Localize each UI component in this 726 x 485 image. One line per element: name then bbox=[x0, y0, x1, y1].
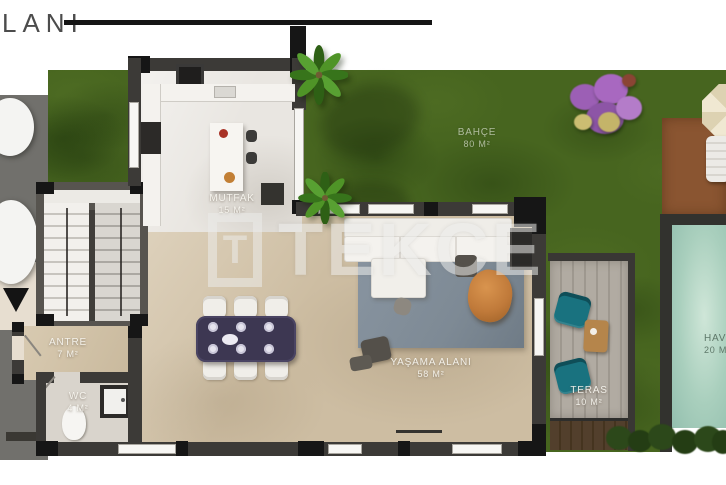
terrace-top-beam bbox=[548, 253, 634, 261]
bottom-window bbox=[328, 444, 362, 454]
wall-post bbox=[532, 424, 546, 446]
entrance-arrow-icon bbox=[3, 288, 29, 312]
hallway-name: ANTRE bbox=[28, 336, 108, 349]
living-area-label: YAŞAMA ALANI 58 M² bbox=[372, 356, 490, 381]
bar-stool bbox=[246, 152, 257, 164]
watermark-logo-letter: T bbox=[223, 228, 247, 273]
bar-stool bbox=[246, 130, 257, 142]
terrace-coffee-table bbox=[583, 319, 609, 352]
stair-landing bbox=[44, 190, 140, 203]
right-window bbox=[534, 298, 544, 356]
dining-chair bbox=[203, 296, 226, 318]
watermark-text: TEKCE bbox=[278, 213, 544, 287]
pool-name: HAVUZ bbox=[704, 332, 726, 345]
wc-label: WC 4 M² bbox=[52, 390, 104, 415]
garden-label: BAHÇE 80 M² bbox=[432, 126, 522, 151]
stair-handrail bbox=[120, 208, 122, 316]
pool-frame bbox=[660, 214, 672, 452]
wall-post bbox=[128, 326, 142, 338]
sun-lounger bbox=[706, 136, 726, 182]
kitchen-top-wall bbox=[128, 58, 304, 71]
flower-cluster bbox=[622, 74, 636, 87]
place-setting bbox=[264, 344, 274, 354]
dining-chair bbox=[234, 296, 257, 318]
dining-chair bbox=[265, 296, 288, 318]
palm-fronds bbox=[290, 45, 348, 105]
wc-left-wall bbox=[36, 372, 46, 450]
tall-cabinet bbox=[141, 122, 161, 154]
watermark-logo: T bbox=[208, 213, 262, 287]
serving-dish bbox=[222, 334, 238, 345]
pool-label: HAVUZ 20 M² bbox=[704, 332, 726, 357]
kitchen-counter-left bbox=[143, 84, 161, 226]
garden-name: BAHÇE bbox=[432, 126, 522, 139]
kitchen-window bbox=[129, 102, 139, 168]
pool-water bbox=[672, 225, 726, 428]
flower-cluster bbox=[616, 96, 642, 120]
place-setting bbox=[264, 322, 274, 332]
flower-cluster bbox=[598, 112, 620, 132]
top-rule bbox=[64, 20, 432, 25]
shower-drain bbox=[121, 398, 125, 402]
bottom-window bbox=[452, 444, 502, 454]
wall-post bbox=[298, 441, 324, 456]
terrace-area: 10 M² bbox=[552, 397, 626, 409]
porch-rail bbox=[396, 430, 442, 433]
wall-post bbox=[36, 182, 54, 194]
floor-plan-canvas: LANI bbox=[0, 0, 726, 485]
fruit-bowl bbox=[224, 172, 235, 183]
wall-post bbox=[176, 441, 188, 456]
wall-post bbox=[12, 322, 24, 332]
wc-door-gap bbox=[54, 372, 80, 383]
hallway-label: ANTRE 7 M² bbox=[28, 336, 108, 361]
wall-post bbox=[398, 441, 410, 456]
place-setting bbox=[208, 322, 218, 332]
hallway-area: 7 M² bbox=[28, 349, 108, 361]
wall-post bbox=[36, 314, 54, 326]
flower-cluster bbox=[574, 114, 592, 130]
terrace-name: TERAS bbox=[552, 384, 626, 397]
garden-lawn-strip bbox=[48, 70, 130, 183]
living-left-wall bbox=[128, 326, 142, 446]
place-setting bbox=[236, 344, 246, 354]
palm-tree bbox=[290, 44, 348, 106]
living-area-area: 58 M² bbox=[372, 369, 490, 381]
cooking-pot bbox=[219, 129, 228, 138]
place-setting bbox=[208, 344, 218, 354]
stair-flight-right bbox=[95, 203, 140, 321]
pool-area: 20 M² bbox=[704, 345, 726, 357]
shower bbox=[100, 385, 130, 418]
wc-area: 4 M² bbox=[52, 403, 104, 415]
bottom-window bbox=[118, 444, 176, 454]
wall-post bbox=[36, 441, 58, 456]
terrace-label: TERAS 10 M² bbox=[552, 384, 626, 409]
stair-divider bbox=[89, 210, 95, 321]
wall-post bbox=[130, 314, 148, 326]
terrace-right-frame bbox=[628, 253, 635, 451]
entry-door-gap bbox=[12, 336, 24, 360]
place-setting bbox=[236, 322, 246, 332]
kitchen-sink bbox=[214, 86, 236, 98]
stair-handrail bbox=[66, 208, 68, 316]
wc-name: WC bbox=[52, 390, 104, 403]
wall-post bbox=[12, 374, 24, 384]
garden-area: 80 M² bbox=[432, 139, 522, 151]
living-area-name: YAŞAMA ALANI bbox=[372, 356, 490, 369]
watermark: T TEKCE bbox=[208, 204, 544, 296]
coffee-cup bbox=[590, 328, 597, 335]
